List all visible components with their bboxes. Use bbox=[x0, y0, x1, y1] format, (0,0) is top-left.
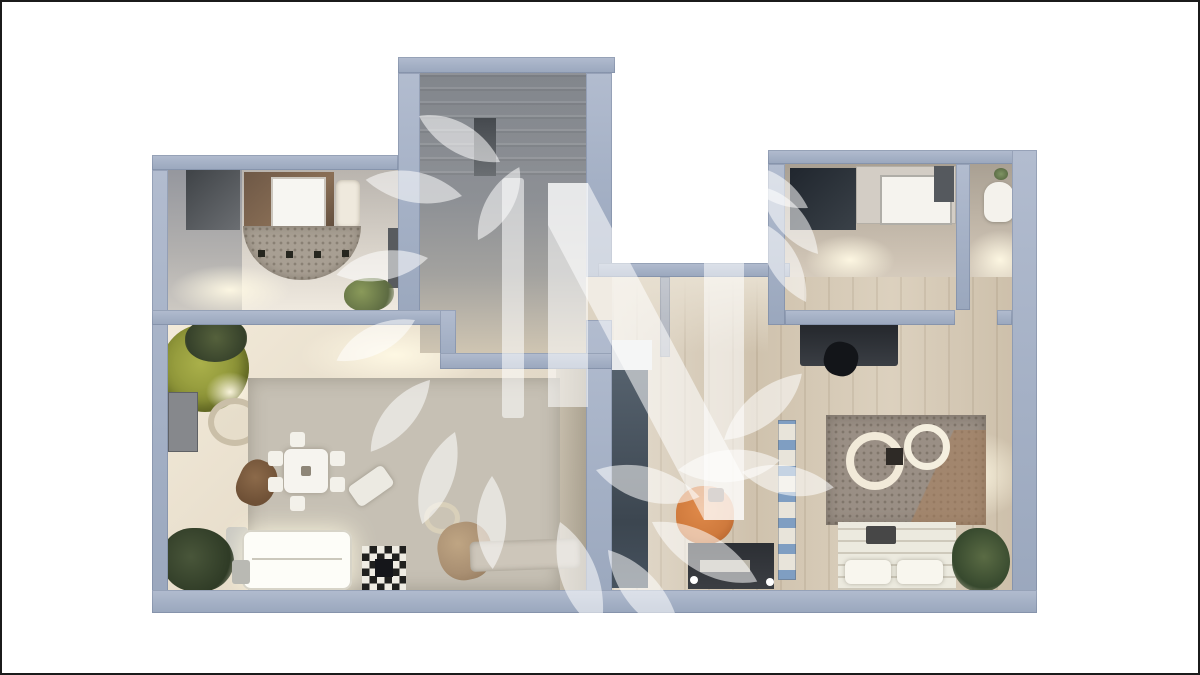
upper-left-top-wall bbox=[152, 155, 398, 170]
floor-plants bbox=[162, 528, 234, 592]
tv-cabinet-lamp bbox=[690, 576, 698, 584]
floorplan-screenshot: N bbox=[0, 0, 1200, 675]
bed-pillow bbox=[897, 560, 943, 584]
staircase bbox=[420, 73, 586, 185]
upper-right-bottom-wall-stub bbox=[997, 310, 1012, 325]
stool-leg-dot bbox=[342, 250, 349, 257]
upper-right-top-wall bbox=[768, 150, 1037, 164]
bedroom-plant bbox=[952, 528, 1010, 592]
left-wall bbox=[152, 170, 168, 613]
right-wall bbox=[1012, 150, 1037, 613]
divider-doorway-floor bbox=[586, 277, 612, 320]
notch-wall bbox=[598, 263, 790, 277]
dining-chair bbox=[290, 432, 305, 447]
duvet-dark-square bbox=[886, 448, 903, 465]
dining-chair bbox=[268, 451, 283, 466]
stool bbox=[336, 180, 360, 228]
radiator bbox=[388, 228, 398, 288]
dark-wardrobe bbox=[186, 170, 240, 230]
bed-pillow bbox=[845, 560, 891, 584]
dining-chair bbox=[290, 496, 305, 511]
hall-partition bbox=[660, 277, 670, 357]
stool-leg-dot bbox=[314, 251, 321, 258]
stool-leg-dot bbox=[286, 251, 293, 258]
dark-mat bbox=[790, 168, 856, 230]
plant-pot bbox=[232, 560, 250, 584]
divider-wall-upper bbox=[586, 73, 612, 277]
tower-top-wall bbox=[398, 57, 615, 73]
tv-cabinet-lamp bbox=[766, 578, 774, 586]
hall-bottom-wall bbox=[440, 353, 612, 369]
stair-doorway bbox=[474, 118, 496, 176]
bathroom-partition bbox=[956, 164, 970, 310]
dining-chair bbox=[330, 451, 345, 466]
console-bench bbox=[470, 538, 581, 572]
bed-bench bbox=[866, 526, 896, 544]
duvet-ring-small bbox=[904, 424, 950, 470]
tower-left-wall bbox=[398, 73, 420, 325]
bedroom-door-swing bbox=[612, 340, 652, 370]
desk-side-unit bbox=[934, 166, 954, 202]
upper-right-bottom-wall bbox=[785, 310, 955, 325]
sofa bbox=[242, 530, 352, 590]
living-top-wall bbox=[152, 310, 447, 325]
dining-chair bbox=[268, 477, 283, 492]
tv-cabinet-shelf bbox=[700, 560, 750, 572]
stool-leg-dot bbox=[258, 250, 265, 257]
upper-right-left-wall bbox=[768, 164, 785, 325]
orange-armchair bbox=[676, 486, 734, 544]
dining-chair bbox=[330, 477, 345, 492]
toilet bbox=[984, 182, 1014, 222]
ladder-shelf bbox=[778, 420, 796, 580]
wardrobe bbox=[612, 370, 648, 588]
toilet-plant bbox=[994, 168, 1008, 180]
vanity-sink bbox=[271, 177, 326, 228]
dining-table-center bbox=[301, 466, 311, 476]
sofa-cushion-line bbox=[252, 558, 342, 560]
bottom-wall bbox=[152, 590, 1037, 613]
wall-cabinet bbox=[168, 392, 198, 452]
orange-armchair-arm bbox=[708, 488, 724, 502]
checkered-ottoman-top bbox=[375, 559, 393, 577]
